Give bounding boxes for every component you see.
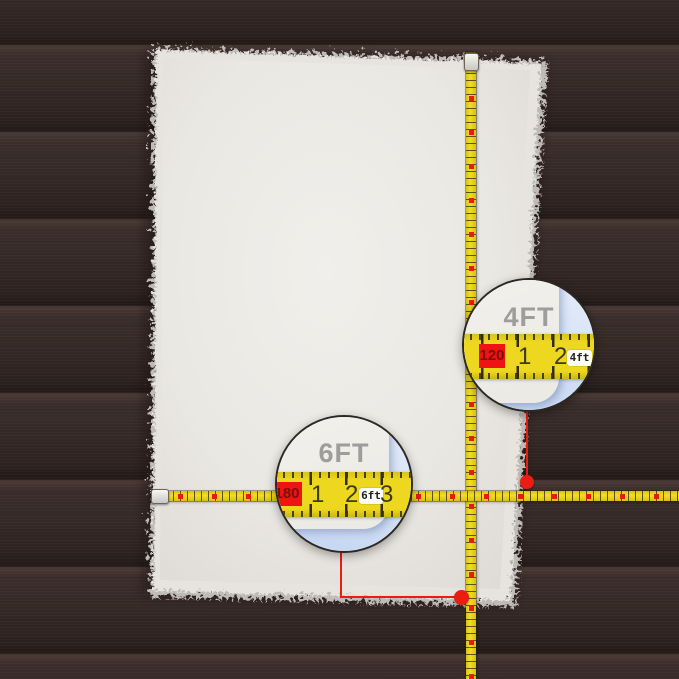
dimension-label-6ft: 6FT [277, 438, 411, 469]
tape-tick-number: 2 [554, 342, 567, 372]
unit-badge-4ft: 4ft [567, 350, 592, 366]
tape-end-clip-left [151, 489, 169, 504]
magnifier-circle-6ft: 6FT 180 1 2 6ft 3 [275, 415, 413, 553]
connector-dot-6ft [454, 590, 469, 605]
cm-marker-180: 180 [275, 482, 302, 506]
magnified-tape-band-6ft: 180 1 2 6ft 3 [275, 472, 413, 517]
dimension-label-4ft: 4FT [464, 302, 594, 333]
magnified-tape-band-4ft: 120 1 2 4ft 3 [462, 334, 596, 379]
connector-line-4ft [526, 407, 528, 477]
magnifier-circle-4ft: 4FT 120 1 2 4ft 3 [462, 278, 596, 412]
connector-line-6ft-horizontal [340, 596, 462, 598]
tape-tick-number: 3 [380, 480, 393, 510]
rug-product-photo: 4FT 120 1 2 4ft 3 6FT 180 1 2 6ft 3 [0, 0, 679, 679]
cm-marker-120: 120 [479, 344, 505, 368]
connector-dot-4ft [520, 475, 534, 489]
tape-tick-number: 1 [311, 480, 324, 510]
tape-tick-number: 1 [518, 342, 531, 372]
tape-end-clip-top [464, 53, 479, 71]
tape-tick-number: 2 [345, 480, 358, 510]
measuring-tape-horizontal [152, 491, 679, 501]
connector-line-6ft-vertical [340, 548, 342, 598]
